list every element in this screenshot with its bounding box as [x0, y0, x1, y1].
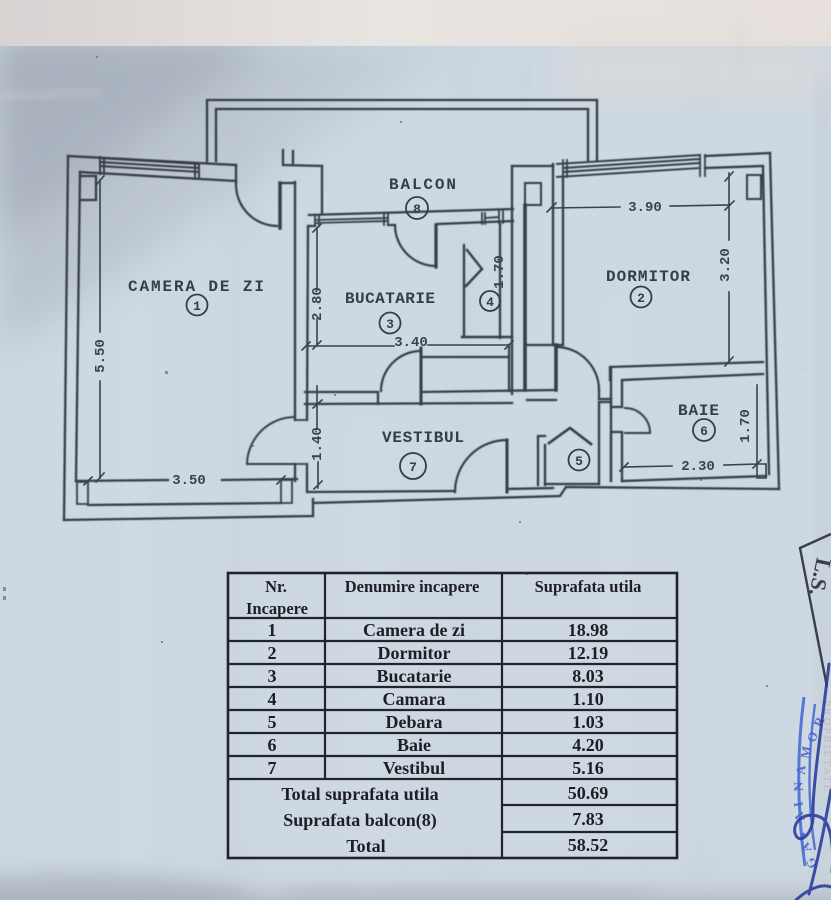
svg-text:3.20: 3.20 — [718, 248, 734, 282]
svg-text:1111111111111111111111111111: 1111111111111111111111111111 — [798, 200, 808, 373]
svg-text:12.19: 12.19 — [568, 643, 609, 663]
svg-text:Vestibul: Vestibul — [383, 758, 445, 778]
svg-text:2: 2 — [637, 291, 645, 306]
svg-text:11111111: 11111111 — [521, 60, 531, 110]
svg-text:Suprafata balcon(8): Suprafata balcon(8) — [283, 810, 437, 831]
svg-text:50.69: 50.69 — [568, 783, 609, 803]
svg-text:2.80: 2.80 — [310, 287, 326, 321]
svg-text:1.03: 1.03 — [572, 712, 604, 732]
svg-text:Total suprafata utila: Total suprafata utila — [281, 784, 438, 804]
svg-text:5.50: 5.50 — [93, 339, 109, 373]
svg-text:4: 4 — [486, 295, 494, 310]
svg-text:CAMERA DE ZI: CAMERA DE ZI — [128, 278, 266, 296]
svg-text:Total: Total — [346, 836, 385, 856]
svg-text:BAIE: BAIE — [678, 402, 719, 420]
svg-text:18.98: 18.98 — [568, 620, 609, 640]
svg-text:2.30: 2.30 — [681, 459, 715, 475]
svg-text:N: N — [790, 781, 806, 792]
svg-text:2: 2 — [268, 643, 277, 663]
svg-text:5: 5 — [575, 454, 583, 469]
svg-text:6: 6 — [700, 424, 708, 439]
svg-text:1.70: 1.70 — [738, 409, 754, 443]
svg-text:5.16: 5.16 — [572, 758, 604, 778]
svg-text:4: 4 — [268, 689, 277, 709]
svg-text:7: 7 — [409, 460, 417, 475]
svg-text:Denumire incapere: Denumire incapere — [345, 577, 480, 596]
svg-text:Bucatarie: Bucatarie — [377, 666, 452, 686]
svg-text:6: 6 — [268, 735, 277, 755]
svg-text:3.40: 3.40 — [394, 335, 428, 351]
svg-text:5: 5 — [268, 712, 277, 732]
svg-text:1.70: 1.70 — [492, 255, 508, 289]
svg-text:3.50: 3.50 — [172, 473, 206, 489]
svg-text:1.40: 1.40 — [310, 427, 326, 461]
svg-text:BUCATARIE: BUCATARIE — [345, 290, 435, 308]
svg-text:111111111111: 111111111111 — [735, 15, 745, 89]
svg-text:Camera de zi: Camera de zi — [363, 620, 465, 640]
svg-text:7.83: 7.83 — [572, 809, 604, 829]
svg-text:1: 1 — [268, 620, 277, 640]
svg-text:M: M — [797, 745, 814, 760]
svg-text:Suprafata utila: Suprafata utila — [535, 577, 642, 596]
svg-text:DORMITOR: DORMITOR — [606, 268, 690, 286]
svg-text:4.20: 4.20 — [572, 735, 604, 755]
svg-text:Camara: Camara — [383, 689, 446, 709]
svg-text:8.03: 8.03 — [572, 666, 604, 686]
svg-text:VESTIBUL: VESTIBUL — [382, 429, 464, 447]
svg-text:58.52: 58.52 — [568, 835, 609, 855]
svg-text:8: 8 — [413, 202, 421, 217]
svg-text:7: 7 — [268, 758, 277, 778]
svg-text:3.90: 3.90 — [628, 200, 662, 216]
svg-text:Baie: Baie — [397, 735, 431, 755]
svg-text:1: 1 — [193, 299, 201, 314]
svg-text:Dormitor: Dormitor — [378, 643, 451, 663]
svg-text:Debara: Debara — [386, 712, 443, 732]
svg-text:1.10: 1.10 — [572, 689, 604, 709]
svg-text:A: A — [793, 764, 809, 775]
svg-text:Incapere: Incapere — [246, 599, 308, 618]
svg-text:11111111111: 11111111111 — [150, 40, 160, 108]
svg-text:Nr.: Nr. — [265, 577, 287, 596]
svg-text:3: 3 — [268, 666, 277, 686]
svg-text:3: 3 — [386, 317, 394, 332]
